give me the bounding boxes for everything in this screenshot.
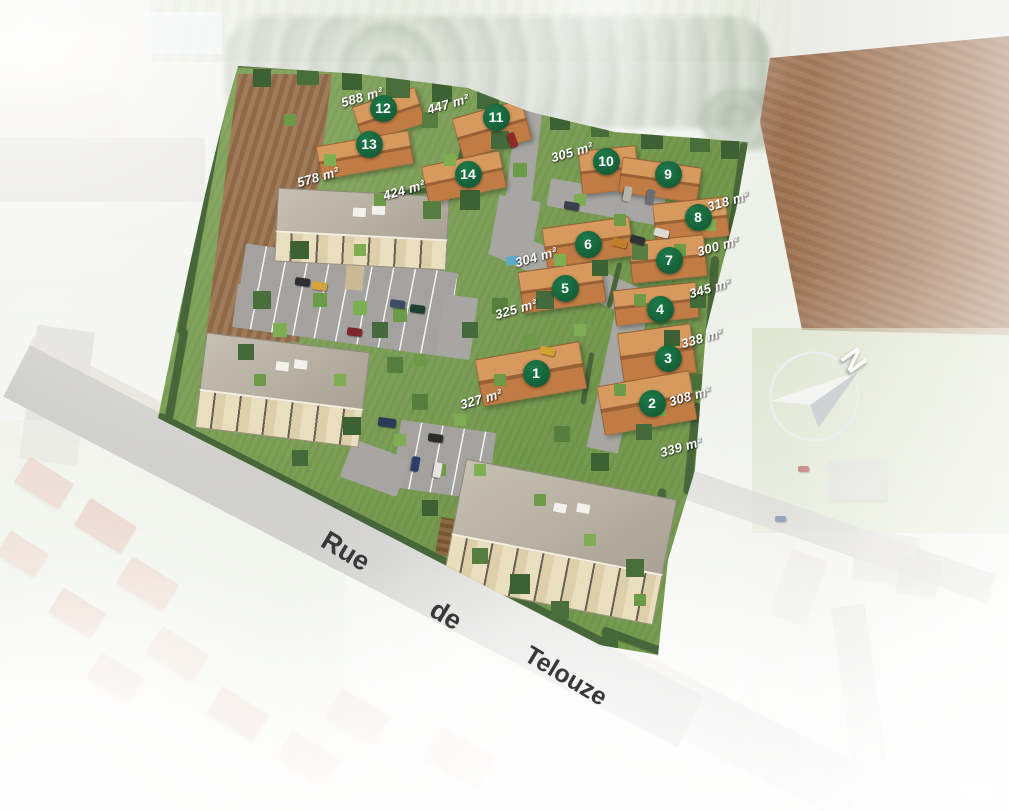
car xyxy=(775,516,786,522)
lot-marker-8[interactable]: 8 xyxy=(685,204,712,231)
ploughed-field xyxy=(760,30,1009,335)
aerial-site-plan: 588 m² 447 m² 578 m² 424 m² 305 m² 318 m… xyxy=(0,0,1009,811)
industrial-building xyxy=(0,94,122,140)
lot-marker-14[interactable]: 14 xyxy=(455,161,482,188)
swimming-pool xyxy=(505,255,520,266)
lot-marker-1[interactable]: 1 xyxy=(523,360,550,387)
industrial-building xyxy=(0,23,153,84)
lot-marker-10[interactable]: 10 xyxy=(593,148,620,175)
lot-marker-13[interactable]: 13 xyxy=(356,131,383,158)
lot-marker-2[interactable]: 2 xyxy=(639,390,666,417)
lot-marker-11[interactable]: 11 xyxy=(483,104,510,131)
neighbor-building xyxy=(896,555,941,596)
lot-marker-7[interactable]: 7 xyxy=(656,247,683,274)
apartment-building-a xyxy=(274,188,450,271)
apartment-building-b xyxy=(195,332,370,447)
lot-marker-4[interactable]: 4 xyxy=(647,296,674,323)
lot-marker-3[interactable]: 3 xyxy=(655,345,682,372)
neighbor-building xyxy=(828,460,886,500)
neighbor-house xyxy=(425,727,495,788)
lot-marker-12[interactable]: 12 xyxy=(370,95,397,122)
industrial-building xyxy=(140,12,222,54)
lot-marker-6[interactable]: 6 xyxy=(575,231,602,258)
industrial-yard xyxy=(0,138,205,202)
car xyxy=(798,466,809,472)
lot-marker-9[interactable]: 9 xyxy=(655,161,682,188)
lot-marker-5[interactable]: 5 xyxy=(552,275,579,302)
neighbor-building xyxy=(770,549,826,623)
